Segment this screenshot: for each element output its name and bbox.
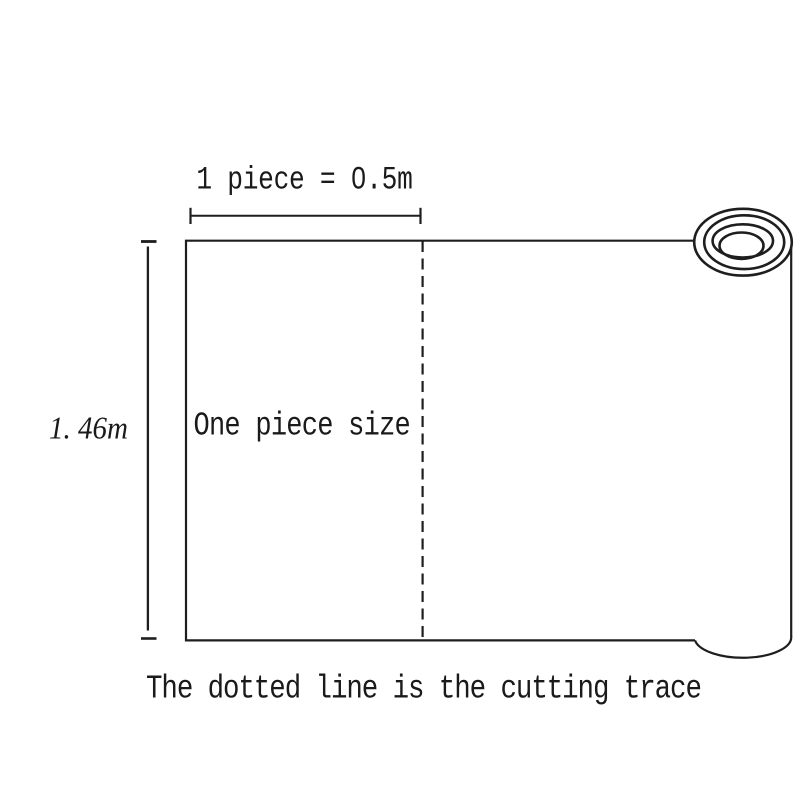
svg-text:1 piece = 0.5m: 1 piece = 0.5m xyxy=(196,162,412,198)
svg-text:The dotted line is the cutting: The dotted line is the cutting trace xyxy=(146,670,702,708)
svg-text:One piece size: One piece size xyxy=(194,408,411,445)
svg-text:1. 46m: 1. 46m xyxy=(49,410,128,445)
